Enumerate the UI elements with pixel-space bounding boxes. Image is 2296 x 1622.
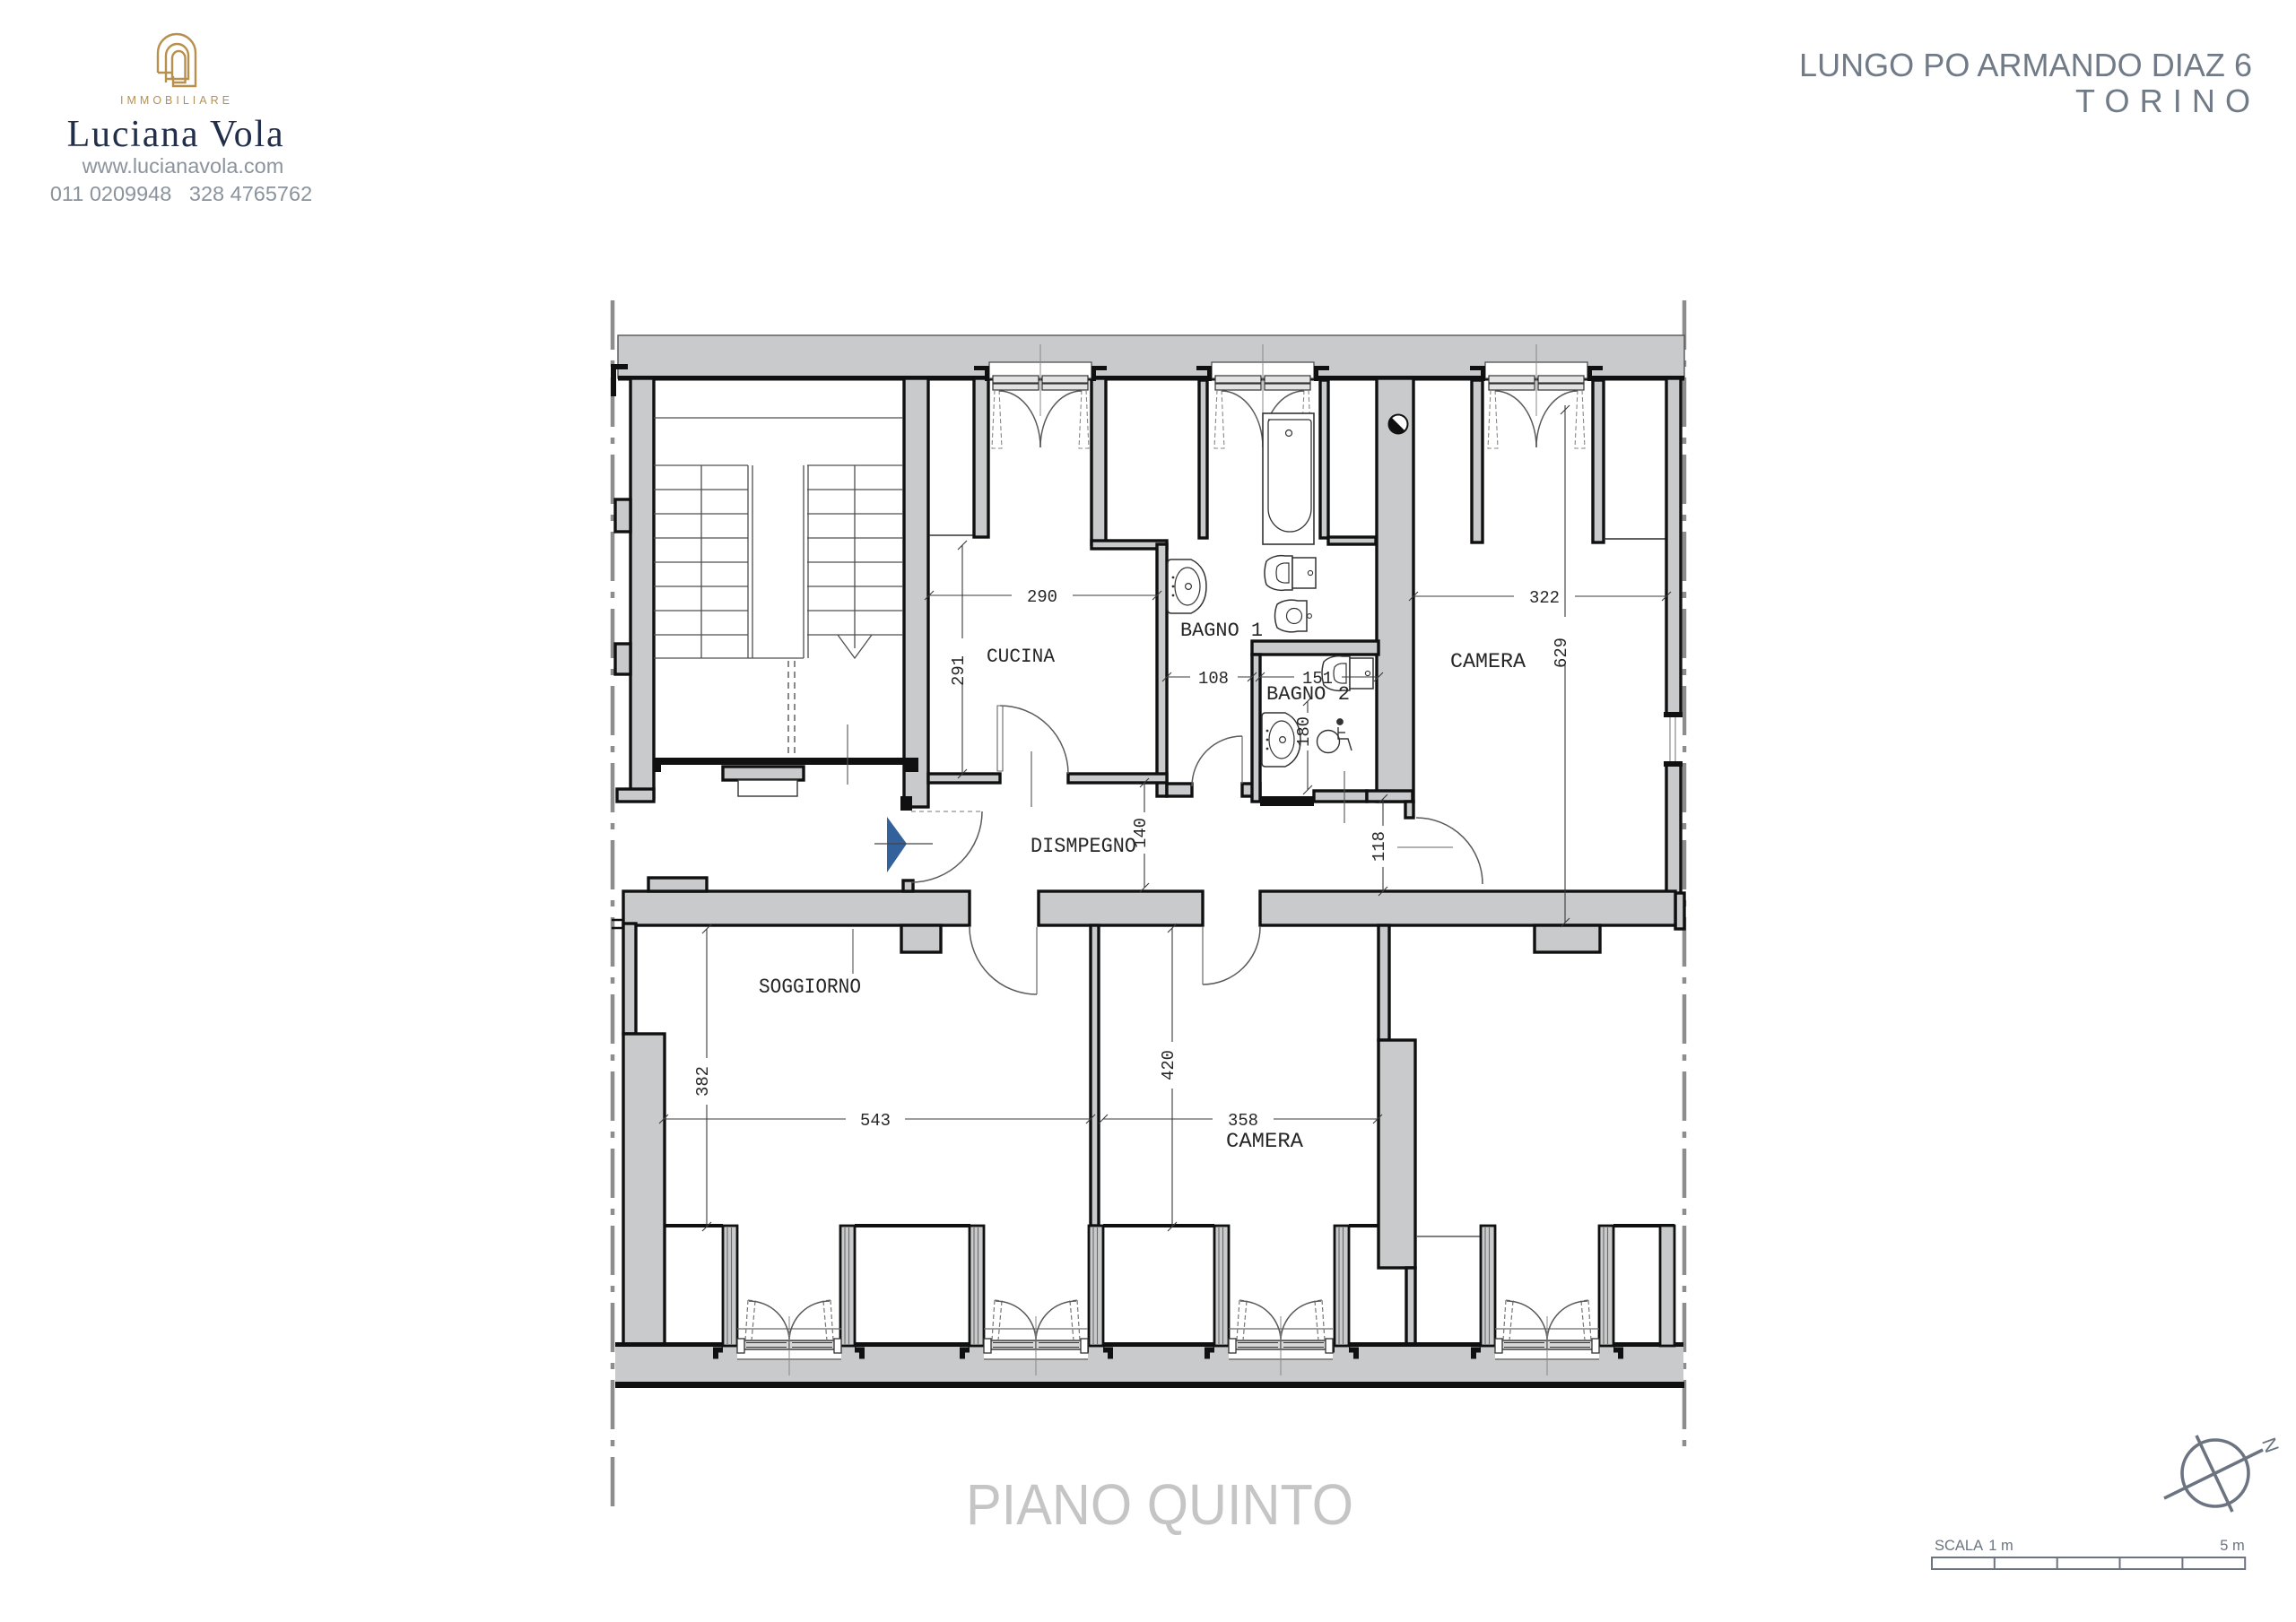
svg-text:DISMPEGNO: DISMPEGNO xyxy=(1031,835,1136,858)
svg-text:629: 629 xyxy=(1552,638,1571,668)
svg-text:SCALA: SCALA xyxy=(1935,1538,1983,1554)
svg-text:011 0209948 328 4765762: 011 0209948 328 4765762 xyxy=(50,182,312,205)
svg-text:290: 290 xyxy=(1027,587,1057,607)
svg-text:118: 118 xyxy=(1370,831,1389,862)
svg-text:180: 180 xyxy=(1294,716,1314,747)
svg-text:108: 108 xyxy=(1198,669,1229,689)
svg-text:358: 358 xyxy=(1228,1111,1258,1131)
svg-text:BAGNO 2: BAGNO 2 xyxy=(1266,683,1350,706)
svg-text:www.lucianavola.com: www.lucianavola.com xyxy=(82,154,284,178)
svg-text:382: 382 xyxy=(693,1066,713,1097)
svg-text:322: 322 xyxy=(1529,588,1560,608)
svg-text:CAMERA: CAMERA xyxy=(1226,1130,1303,1153)
svg-text:PIANO QUINTO: PIANO QUINTO xyxy=(966,1472,1353,1537)
svg-text:291: 291 xyxy=(949,655,969,686)
svg-text:1 m: 1 m xyxy=(1988,1538,2013,1554)
svg-text:CUCINA: CUCINA xyxy=(987,646,1056,668)
svg-text:IMMOBILIARE: IMMOBILIARE xyxy=(120,94,233,107)
svg-text:BAGNO 1: BAGNO 1 xyxy=(1180,620,1263,642)
svg-text:LUNGO PO ARMANDO DIAZ 6: LUNGO PO ARMANDO DIAZ 6 xyxy=(1799,47,2252,83)
svg-text:CAMERA: CAMERA xyxy=(1450,650,1526,673)
svg-text:543: 543 xyxy=(860,1111,891,1131)
svg-text:5 m: 5 m xyxy=(2220,1538,2245,1554)
svg-text:420: 420 xyxy=(1159,1050,1178,1080)
svg-text:Luciana Vola: Luciana Vola xyxy=(67,114,285,155)
svg-text:SOGGIORNO: SOGGIORNO xyxy=(759,976,861,999)
